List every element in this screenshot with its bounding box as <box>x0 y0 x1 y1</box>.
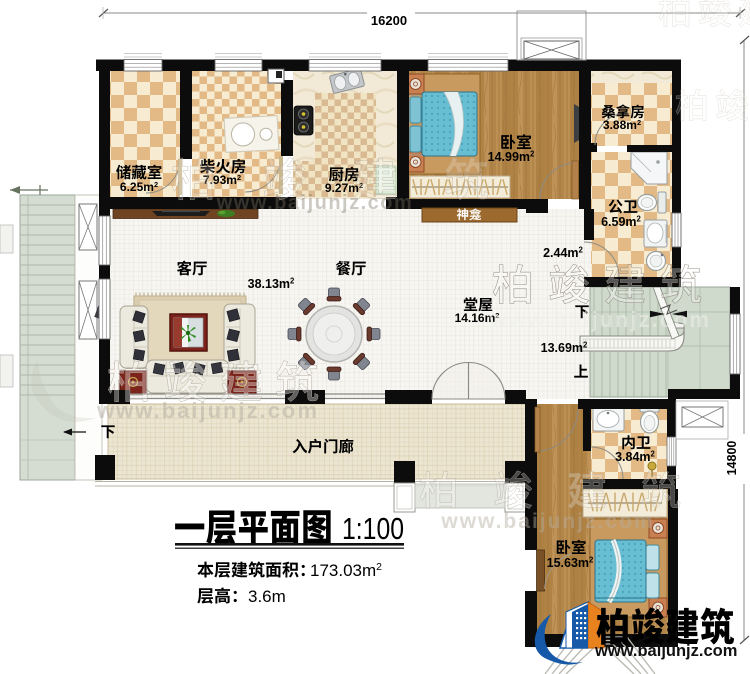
svg-text:3.6m: 3.6m <box>248 587 286 606</box>
svg-text:3.88m2: 3.88m2 <box>603 118 641 132</box>
svg-text:www.baijunjz.com: www.baijunjz.com <box>488 307 711 332</box>
svg-text:www.baijunjz.com: www.baijunjz.com <box>440 510 654 533</box>
svg-text:www.baijunjz.com: www.baijunjz.com <box>594 642 737 660</box>
svg-text:3.84m2: 3.84m2 <box>615 450 655 464</box>
svg-text:14800: 14800 <box>725 441 739 476</box>
svg-text:38.13m2: 38.13m2 <box>248 277 295 291</box>
svg-text:15.63m2: 15.63m2 <box>547 556 594 570</box>
svg-text:16200: 16200 <box>371 13 407 28</box>
svg-text:6.25m2: 6.25m2 <box>120 180 158 194</box>
svg-text:www.baijunjz.com: www.baijunjz.com <box>216 192 414 214</box>
svg-text:14.99m2: 14.99m2 <box>488 150 535 164</box>
svg-text:13.69m2: 13.69m2 <box>541 341 588 355</box>
svg-text:1:100: 1:100 <box>342 511 404 546</box>
svg-text:2.44m2: 2.44m2 <box>543 246 583 260</box>
svg-text:6.59m2: 6.59m2 <box>601 215 641 229</box>
svg-text:www.baijunjz.com: www.baijunjz.com <box>96 398 319 423</box>
svg-text:173.03m2: 173.03m2 <box>310 561 382 580</box>
